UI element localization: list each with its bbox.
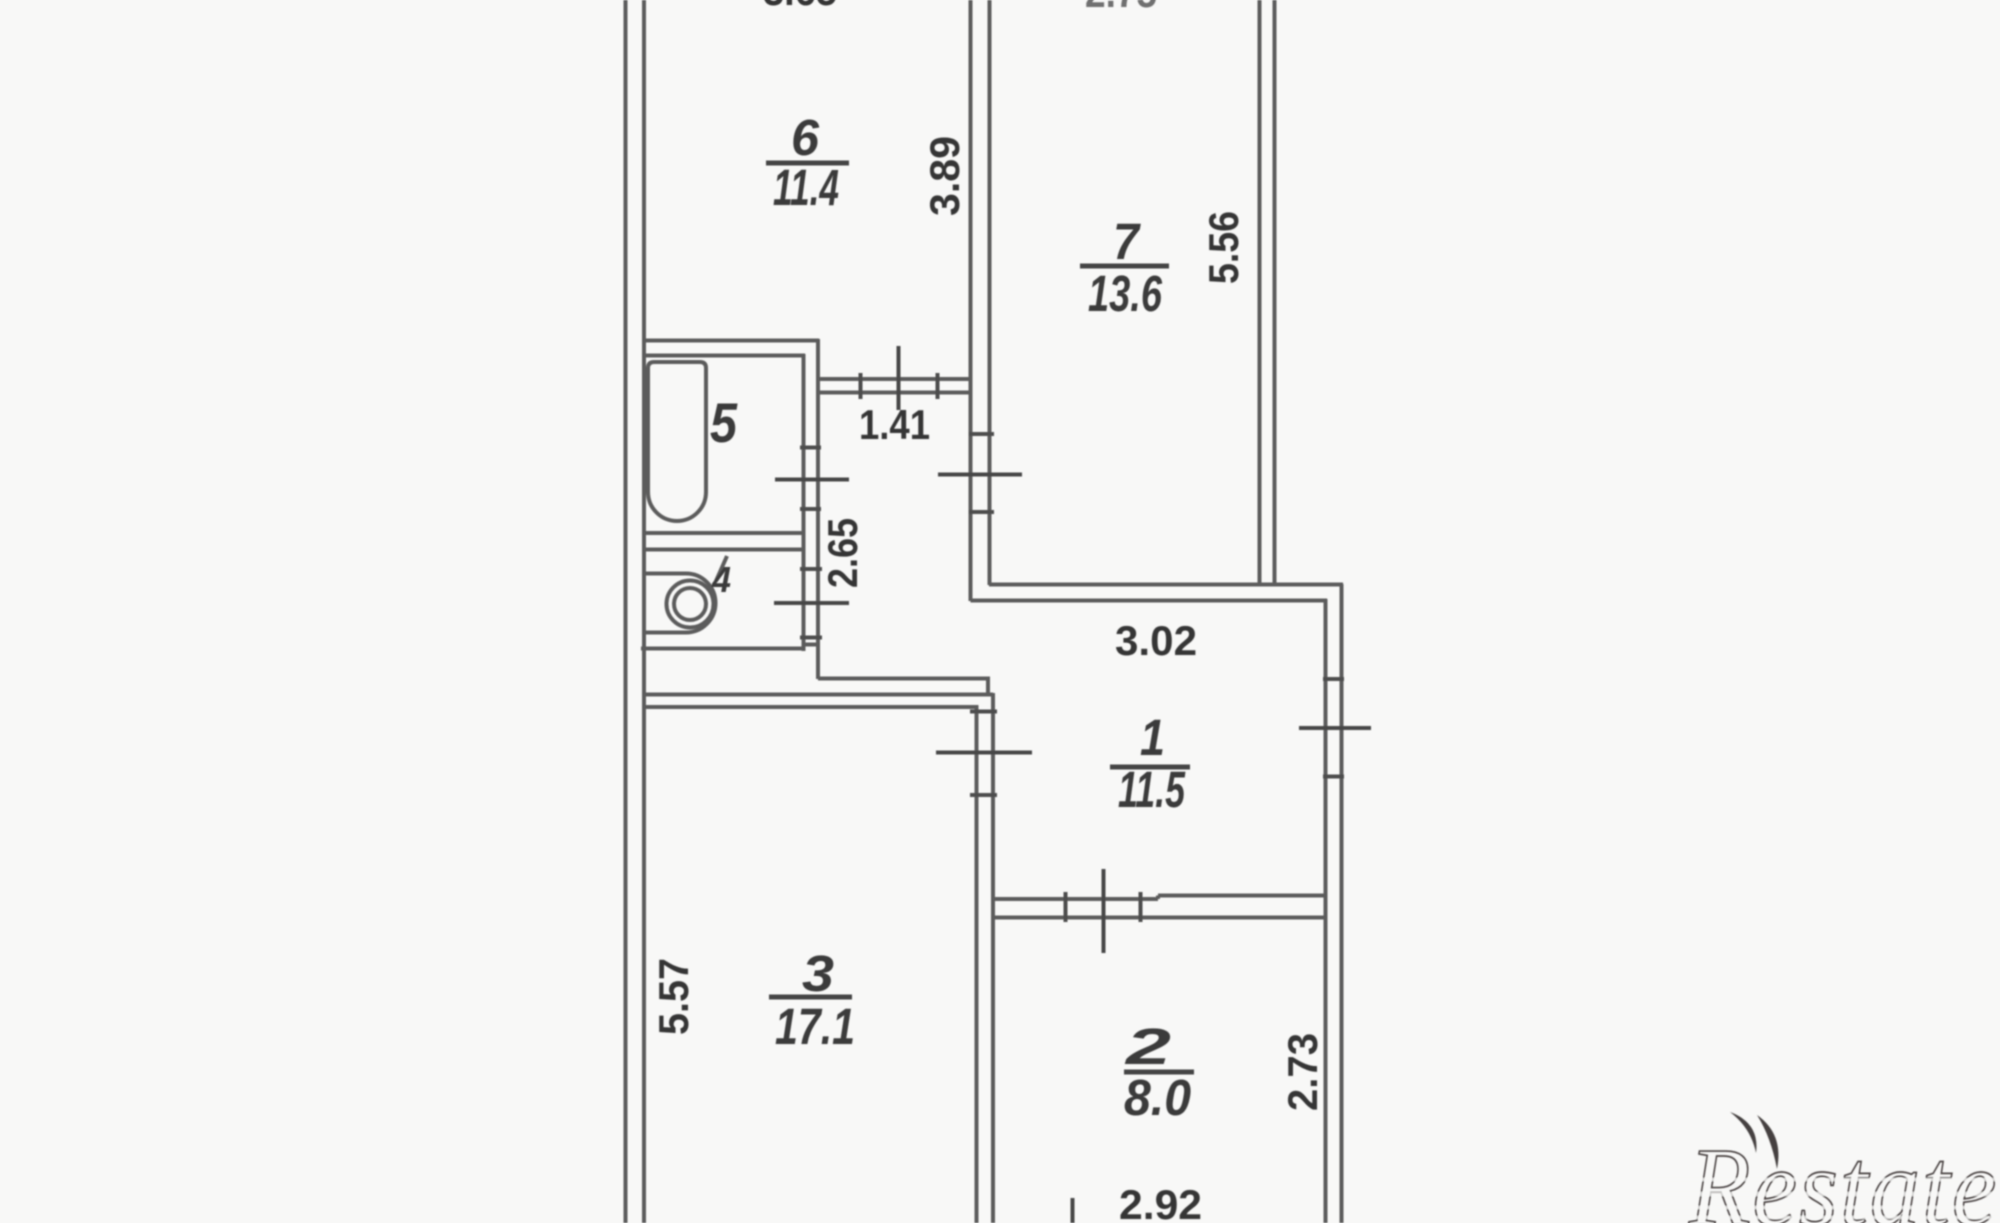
svg-text:5.56: 5.56: [1200, 211, 1247, 284]
svg-text:7: 7: [1113, 213, 1141, 270]
svg-text:8.0: 8.0: [1124, 1069, 1191, 1126]
svg-text:1: 1: [1140, 709, 1165, 766]
svg-text:2.65: 2.65: [819, 518, 866, 588]
svg-text:11.4: 11.4: [773, 159, 839, 216]
svg-text:3.02: 3.02: [1115, 617, 1197, 664]
svg-text:2.75: 2.75: [1085, 0, 1157, 16]
svg-text:3.89: 3.89: [921, 136, 968, 216]
svg-text:5.57: 5.57: [650, 958, 697, 1035]
svg-text:2: 2: [1124, 1018, 1171, 1075]
svg-text:5: 5: [710, 391, 738, 454]
svg-text:6: 6: [791, 109, 820, 166]
svg-text:1.41: 1.41: [859, 401, 930, 448]
svg-text:13.6: 13.6: [1088, 265, 1162, 322]
svg-text:17.1: 17.1: [775, 998, 855, 1055]
svg-text:2.92: 2.92: [1119, 1181, 1202, 1223]
svg-text:11.5: 11.5: [1118, 761, 1185, 818]
svg-text:4: 4: [711, 559, 731, 600]
svg-text:3: 3: [802, 945, 834, 1002]
svg-text:2.73: 2.73: [1279, 1033, 1326, 1111]
svg-text:3.65: 3.65: [763, 0, 837, 14]
